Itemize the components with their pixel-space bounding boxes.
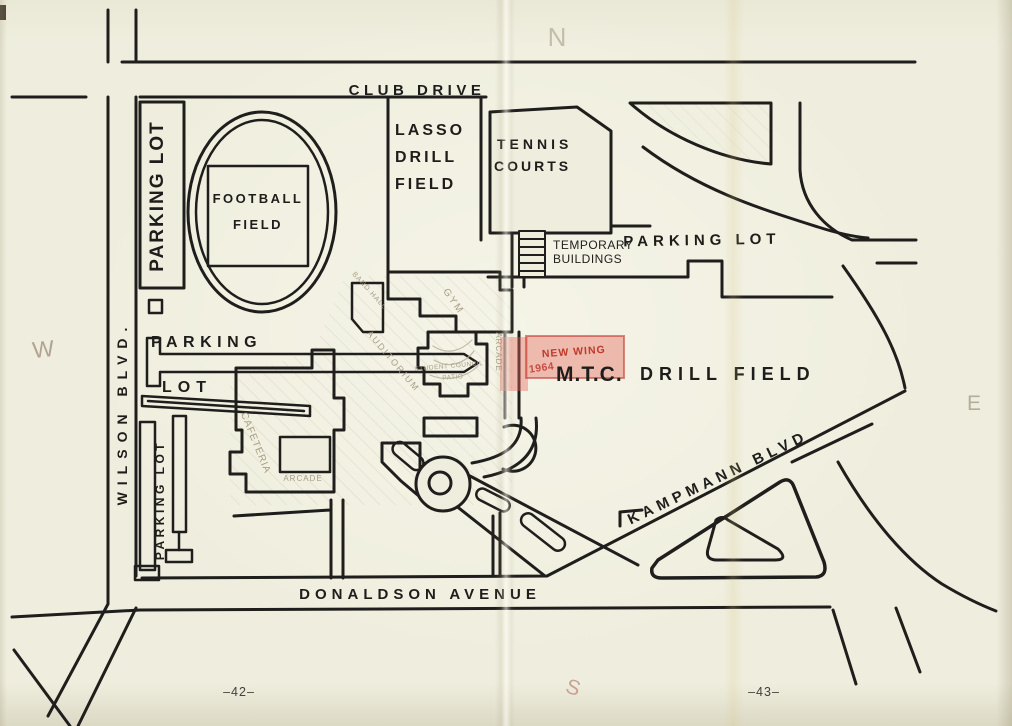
compass-east-label: E <box>967 392 981 415</box>
scan-edge-mark <box>0 5 6 20</box>
parking-lot-center-label-line2: LOT <box>162 379 212 396</box>
median-island-2 <box>518 510 568 553</box>
traffic-circle-outer <box>416 457 470 511</box>
page-number-left: –42– <box>223 685 255 699</box>
football-field-rect <box>208 166 308 266</box>
lasso-field-label-line1: LASSO <box>395 122 465 139</box>
campus-map: CLUB DRIVE PARKING LOT FOOTBALL FIELD LA… <box>0 0 1012 726</box>
street-label-club-drive: CLUB DRIVE <box>349 82 486 99</box>
compass-south-label: S <box>563 675 583 701</box>
lasso-field-label-line2: DRILL <box>395 149 457 166</box>
parking-lot-southwest-label: PARKING LOT <box>153 440 167 560</box>
street-label-kampmann-blvd: KAMPMANN BLVD <box>625 428 811 529</box>
running-track-outer <box>188 112 336 312</box>
east-curved-road <box>838 266 996 611</box>
arcade-lower-label: ARCADE <box>283 474 322 483</box>
tennis-courts-label-line1: TENNIS <box>497 136 572 152</box>
parking-lot-west-label: PARKING LOT <box>147 120 168 271</box>
parking-lot-northeast-label: PARKING LOT <box>623 231 780 251</box>
arcade-lower-building <box>280 437 330 472</box>
football-field-label-line1: FOOTBALL <box>213 191 304 206</box>
temporary-buildings-label-line1: TEMPORARY <box>553 238 633 252</box>
drill-field-label: DRILL FIELD <box>640 364 816 384</box>
temporary-buildings-label-line2: BUILDINGS <box>553 252 622 266</box>
football-field-label-line2: FIELD <box>233 217 283 232</box>
west-parking-marker <box>149 300 162 313</box>
new-wing-highlight-mark <box>500 337 528 391</box>
mtc-label: M.T.C. <box>556 363 623 386</box>
southeast-street <box>833 608 920 684</box>
kampmann-triangle-island <box>707 518 782 561</box>
street-label-donaldson-avenue: DONALDSON AVENUE <box>299 586 541 603</box>
parking-lot-center-label-line1: PARKING <box>151 334 262 351</box>
lasso-field-label-line3: FIELD <box>395 176 456 193</box>
page-number-right: –43– <box>748 685 780 699</box>
tennis-courts-label-line2: COURTS <box>494 158 571 174</box>
street-label-wilson-blvd: WILSON BLVD. <box>114 321 130 506</box>
north-east-block-shading <box>630 103 771 164</box>
temporary-buildings-block <box>519 231 545 277</box>
south-campus-streets <box>234 500 500 578</box>
arcade-upper-label: ARCADE <box>494 332 503 371</box>
compass-west-label: W <box>31 335 56 363</box>
compass-north-label: N <box>548 22 567 52</box>
